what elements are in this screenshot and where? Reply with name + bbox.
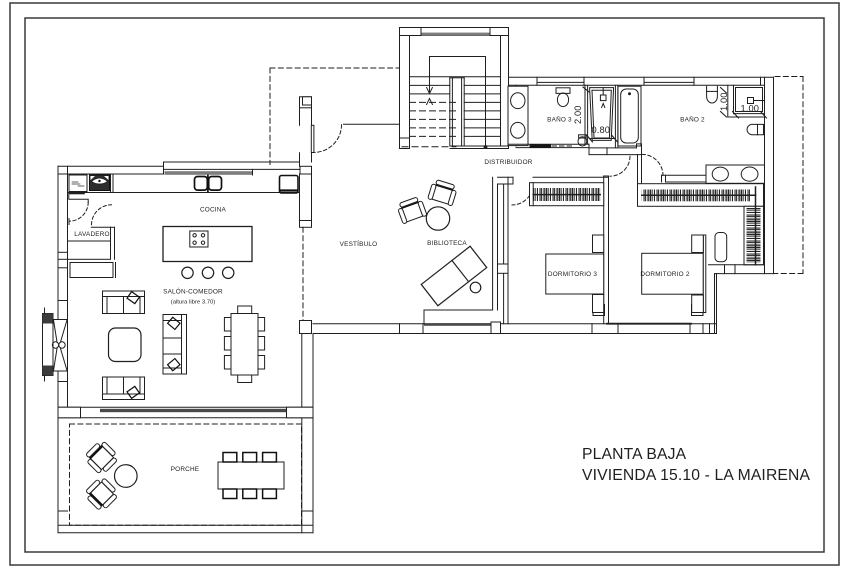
svg-text:1.00: 1.00 bbox=[719, 93, 729, 112]
svg-text:COCINA: COCINA bbox=[200, 207, 227, 214]
svg-text:BIBLIOTECA: BIBLIOTECA bbox=[427, 240, 467, 247]
svg-text:SALÓN-COMEDOR: SALÓN-COMEDOR bbox=[163, 287, 223, 296]
svg-text:DISTRIBUIDOR: DISTRIBUIDOR bbox=[484, 159, 532, 166]
svg-text:PORCHE: PORCHE bbox=[171, 466, 200, 473]
svg-text:2.00: 2.00 bbox=[573, 106, 583, 125]
svg-text:0.80: 0.80 bbox=[592, 125, 611, 135]
svg-text:(altura libre 3.70): (altura libre 3.70) bbox=[171, 300, 216, 306]
svg-text:DORMITORIO 3: DORMITORIO 3 bbox=[548, 271, 597, 278]
svg-text:DORMITORIO 2: DORMITORIO 2 bbox=[640, 271, 689, 278]
svg-text:BAÑO 2: BAÑO 2 bbox=[680, 115, 705, 124]
svg-text:1.00: 1.00 bbox=[741, 104, 760, 114]
svg-text:VIVIENDA 15.10 - LA MAIRENA: VIVIENDA 15.10 - LA MAIRENA bbox=[582, 467, 811, 484]
svg-text:LAVADERO: LAVADERO bbox=[74, 231, 109, 238]
svg-text:BAÑO 3: BAÑO 3 bbox=[547, 115, 572, 124]
svg-text:VESTÍBULO: VESTÍBULO bbox=[340, 239, 378, 248]
svg-text:PLANTA BAJA: PLANTA BAJA bbox=[582, 446, 687, 463]
